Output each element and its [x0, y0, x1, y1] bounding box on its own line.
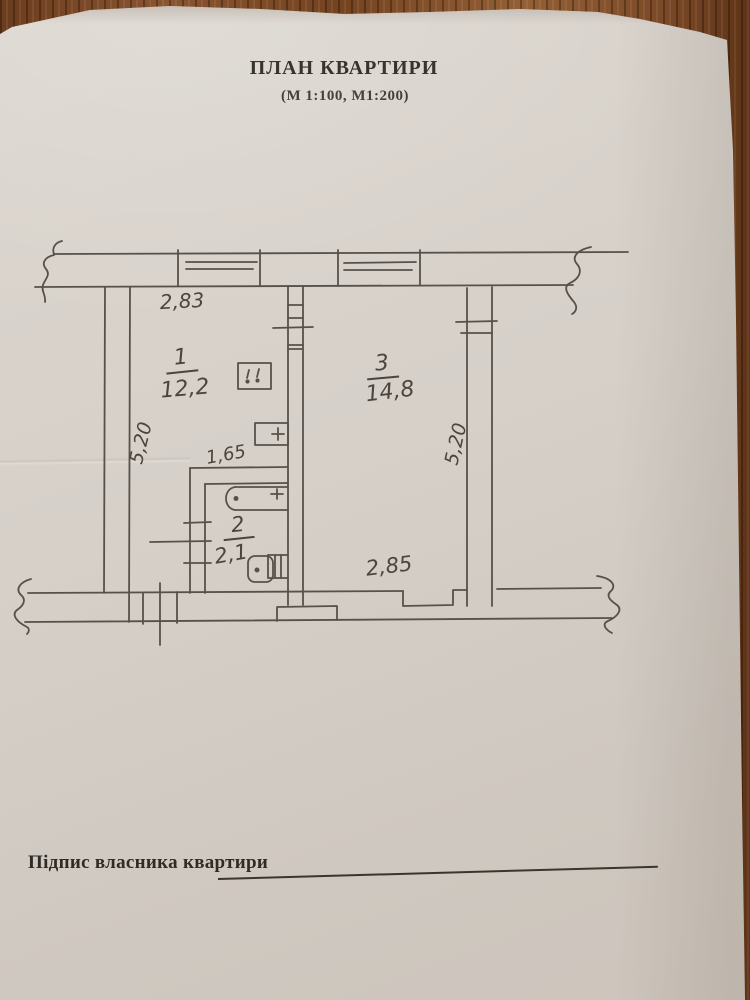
sink-symbol [255, 423, 288, 445]
bathtub-symbol [226, 487, 288, 510]
room3-number: 3 [365, 350, 399, 381]
room1-area: 12,2 [160, 374, 211, 403]
toilet-symbol [248, 555, 288, 582]
room1-number: 1 [164, 343, 199, 374]
window-symbol-1 [178, 250, 260, 286]
interior-walls [104, 287, 497, 622]
wall-break-mark-bottom-left [15, 579, 31, 634]
stove-symbol [238, 363, 271, 389]
wall-break-mark-top-right [566, 247, 591, 314]
window-symbol-2 [338, 250, 420, 286]
wall-break-mark-top-left [43, 255, 54, 302]
dimension-room1-width: 2,83 [159, 288, 205, 314]
room1-number-text: 1 [164, 343, 199, 374]
room2-number-text: 2 [221, 511, 255, 541]
wall-break-mark-bottom-right [597, 576, 619, 633]
photographed-floor-plan: ПЛАН КВАРТИРИ (М 1:100, М1:200) [0, 0, 750, 1000]
wall-hatch-marks [150, 522, 211, 563]
paper-sheet: ПЛАН КВАРТИРИ (М 1:100, М1:200) [0, 0, 750, 1000]
room3-number-text: 3 [365, 350, 399, 381]
door-opening-room3 [273, 305, 313, 349]
entry-threshold [277, 606, 337, 621]
room2-number: 2 [221, 511, 255, 541]
outer-walls [25, 241, 628, 622]
